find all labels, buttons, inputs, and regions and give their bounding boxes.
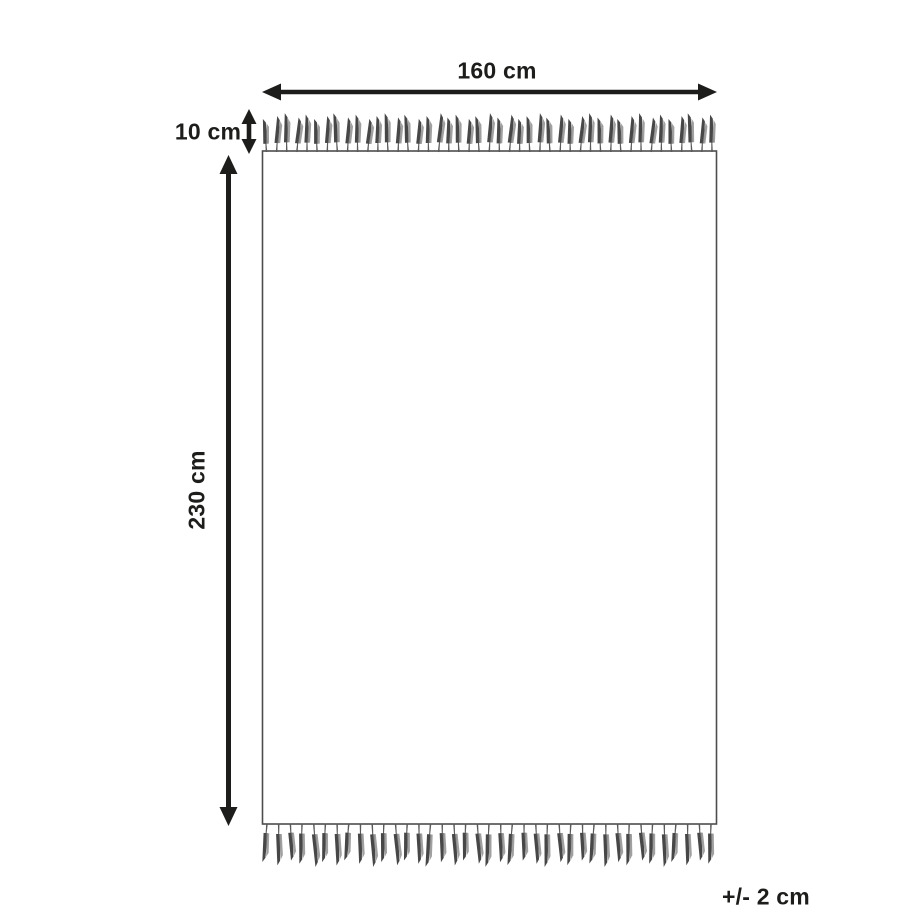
tassel-strand <box>674 823 677 834</box>
tassel <box>462 823 470 860</box>
tassel-strand <box>605 824 607 836</box>
tassel <box>274 116 283 152</box>
tassel-strand <box>640 141 642 152</box>
tassel <box>670 823 680 862</box>
width-arrow-right-head <box>698 84 717 101</box>
tassel <box>580 823 587 860</box>
tassel-strand <box>663 823 665 835</box>
height-arrow-top-head <box>220 155 238 174</box>
tassel <box>354 114 361 152</box>
tassel <box>615 823 624 862</box>
tassel <box>709 114 716 152</box>
tassel-strand <box>453 823 455 835</box>
tassel <box>662 823 670 867</box>
width-arrow-left-head <box>262 84 281 101</box>
tassel-strand <box>360 824 362 835</box>
tassel-strand <box>290 823 292 833</box>
tassel-strand <box>265 823 268 834</box>
tassel <box>608 114 616 152</box>
tassel <box>566 823 575 865</box>
tassel <box>578 116 588 152</box>
tassel <box>451 823 460 865</box>
tassel <box>276 824 283 866</box>
tassel <box>416 823 424 863</box>
tassel <box>304 115 311 152</box>
tassel <box>679 116 687 152</box>
tassel <box>380 823 388 862</box>
tassel <box>311 823 321 867</box>
tassel <box>521 824 528 861</box>
tassel-strand <box>278 824 280 836</box>
tassel <box>498 823 505 862</box>
tassel <box>545 117 554 152</box>
tassel <box>261 823 271 862</box>
tassel <box>403 823 412 860</box>
tassel <box>475 823 485 864</box>
tassel <box>403 114 412 152</box>
rug-dimensions-diagram: 160 cm 10 cm 230 cm +/- 2 cm <box>0 0 920 920</box>
tassel-strand <box>661 142 663 152</box>
tassel <box>466 119 474 152</box>
tassel <box>537 113 545 152</box>
tassel <box>345 117 354 152</box>
tassel <box>507 114 517 152</box>
tassel <box>325 116 333 152</box>
rug <box>261 113 716 867</box>
width-label: 160 cm <box>457 58 536 85</box>
tassel <box>685 824 692 866</box>
tassel <box>358 824 365 864</box>
diagram-canvas <box>0 0 920 920</box>
tassel-strand <box>336 823 338 835</box>
tassel-strand <box>519 143 521 152</box>
tassel <box>649 117 659 152</box>
fringe-arrow-top-head <box>242 109 257 124</box>
tassel <box>484 823 493 867</box>
tassel-strand <box>569 823 571 835</box>
tassel <box>628 116 637 152</box>
tassel <box>533 823 542 864</box>
tassel <box>335 823 343 865</box>
tassel-strand <box>590 141 592 152</box>
tassel <box>588 823 598 864</box>
tassel-strand <box>286 141 288 152</box>
tassel-strand <box>371 823 373 835</box>
tassel-strand <box>710 823 712 834</box>
tassel <box>596 117 605 152</box>
tassel-strand <box>592 823 595 834</box>
height-label: 230 cm <box>184 450 211 529</box>
tassel <box>454 114 463 152</box>
tassel <box>616 119 625 153</box>
tassel <box>474 116 483 152</box>
fringe-height-arrow <box>242 109 257 154</box>
tolerance-label: +/- 2 cm <box>722 884 810 911</box>
tassel <box>487 113 496 152</box>
height-arrow-bottom-head <box>220 807 238 826</box>
tassel-strand <box>324 823 326 834</box>
tassel <box>294 117 304 152</box>
tassel-strand <box>301 823 303 834</box>
tassel <box>625 823 633 865</box>
tassel <box>588 113 595 152</box>
tassel <box>298 823 306 864</box>
tassel <box>393 823 403 865</box>
tassel-strand <box>687 824 689 836</box>
top-fringe <box>262 113 717 152</box>
tassel-strand <box>640 823 642 833</box>
tassel-strand <box>357 142 359 152</box>
tassel-strand <box>582 823 584 833</box>
tassel <box>424 823 435 867</box>
tassel-strand <box>441 824 443 835</box>
tassel <box>436 113 446 152</box>
tassel-strand <box>511 823 514 835</box>
tassel <box>648 823 657 864</box>
tassel-strand <box>546 823 548 835</box>
tassel <box>603 824 610 868</box>
tassel-strand <box>711 142 713 152</box>
tassel <box>332 113 341 152</box>
tassel <box>283 113 290 152</box>
tassel-strand <box>428 142 430 152</box>
tassel-strand <box>523 824 525 834</box>
tassel-strand <box>306 142 308 152</box>
tassel <box>686 113 695 152</box>
tassel <box>262 119 271 153</box>
tassel <box>396 117 404 152</box>
tassel-strand <box>558 823 560 834</box>
tassel-strand <box>464 823 466 833</box>
tassel <box>517 119 524 152</box>
tassel <box>707 823 715 864</box>
tassel <box>558 114 567 152</box>
tassel <box>543 823 551 867</box>
tassel <box>365 119 375 153</box>
tassel <box>383 113 392 152</box>
tassel-strand <box>406 823 408 833</box>
tassel <box>313 119 322 152</box>
tassel <box>370 823 379 867</box>
tassel <box>567 119 574 152</box>
tassel <box>638 823 647 860</box>
tassel <box>525 116 534 152</box>
tassel <box>343 823 353 861</box>
tassel <box>557 823 566 862</box>
tassel-strand <box>500 823 502 834</box>
tassel-strand <box>418 823 420 834</box>
height-arrow <box>220 155 238 826</box>
tassel-strand <box>699 823 701 833</box>
tassel <box>699 117 708 152</box>
tassel-strand <box>651 823 653 834</box>
tassel-strand <box>313 823 315 835</box>
rug-outline <box>263 151 717 824</box>
fringe-height-label: 10 cm <box>175 119 241 146</box>
fringe-arrow-bottom-head <box>242 139 257 154</box>
tassel-strand <box>429 823 432 835</box>
tassel-strand <box>448 142 450 152</box>
tassel <box>416 119 425 152</box>
tassel <box>506 823 516 865</box>
tassel-strand <box>488 823 490 835</box>
tassel-strand <box>535 823 537 834</box>
tassel <box>440 824 447 863</box>
tassel-strand <box>383 823 385 834</box>
tassel <box>288 823 297 860</box>
tassel <box>321 823 330 862</box>
tassel-strand <box>617 823 619 834</box>
tassel-strand <box>395 823 397 835</box>
tassel-strand <box>569 143 571 152</box>
tassel <box>659 115 666 152</box>
width-arrow <box>262 84 717 101</box>
tassel <box>697 823 706 860</box>
tassel-strand <box>377 142 379 152</box>
tassel-strand <box>498 142 500 152</box>
tassel-strand <box>347 823 349 833</box>
tassel-strand <box>628 823 630 835</box>
tassel <box>667 119 676 152</box>
tassel <box>638 113 645 152</box>
tassel <box>375 116 382 152</box>
tassel <box>446 117 453 152</box>
tassel <box>425 116 432 152</box>
tassel-strand <box>477 823 479 834</box>
bottom-fringe <box>261 823 715 867</box>
tassel <box>496 117 503 152</box>
